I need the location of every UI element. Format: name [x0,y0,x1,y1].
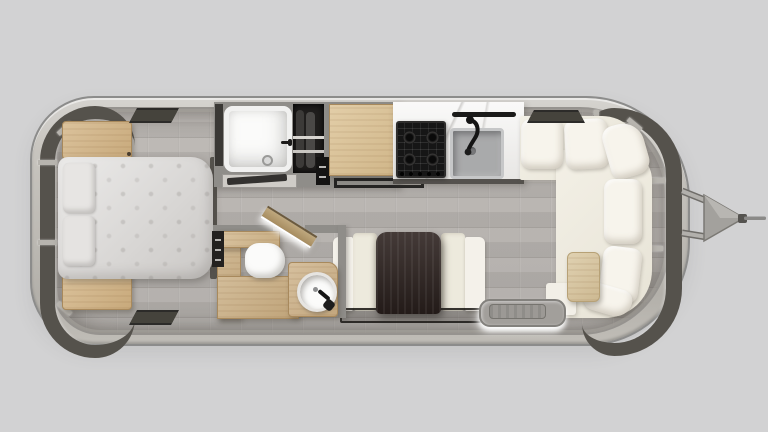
nightstand-rear-top [62,121,132,161]
overhead-cabinet [329,104,398,176]
pillow [63,216,95,266]
hanging-clothes [306,112,315,168]
cabinet-handle [319,176,326,178]
sofa-back-cushion [564,118,610,170]
closet-rod [293,136,324,139]
roof-vent-bedroom-bottom [129,310,179,325]
roof-vent-front [527,110,585,123]
cooktop [396,121,446,178]
hitch-tongue [680,180,768,260]
burner [426,131,439,144]
shower-drain [262,155,273,166]
shower [224,106,292,172]
roof-vent-bedroom-top [129,108,179,123]
sofa-back-cushion [604,179,642,244]
towel-rack [334,185,424,188]
drawer-knob [127,152,131,156]
window-seam [38,240,57,245]
window-seam [38,160,57,165]
bath-hardware-detail [215,239,221,241]
utility-cabinet [316,157,330,185]
counter-front-edge [393,179,524,184]
burner [426,153,439,166]
burner [403,153,416,166]
shower-side-cabinet [215,104,223,166]
shower-valve [288,139,292,146]
bath-wall-right [338,225,346,318]
cooktop-knobs [400,172,404,176]
dinette-bench-left [353,233,377,311]
closet-rod [293,150,324,153]
burner [403,131,416,144]
dinette-armrest-right [465,237,485,311]
vanity-bench [217,276,299,319]
toilet [245,243,285,278]
sofa-back-cushion [521,119,563,169]
kitchen-faucet [455,114,485,158]
cabinet-handle [319,166,326,168]
dinette-bench-right [441,233,465,311]
towel-rack-end [334,178,337,188]
pillow [63,163,95,213]
chaise-table [567,252,600,302]
entry-step-tread [489,304,546,319]
bath-hardware [212,231,224,267]
hanging-clothes [296,110,304,168]
floor-plan-render [0,0,768,432]
dinette-table [376,232,441,314]
